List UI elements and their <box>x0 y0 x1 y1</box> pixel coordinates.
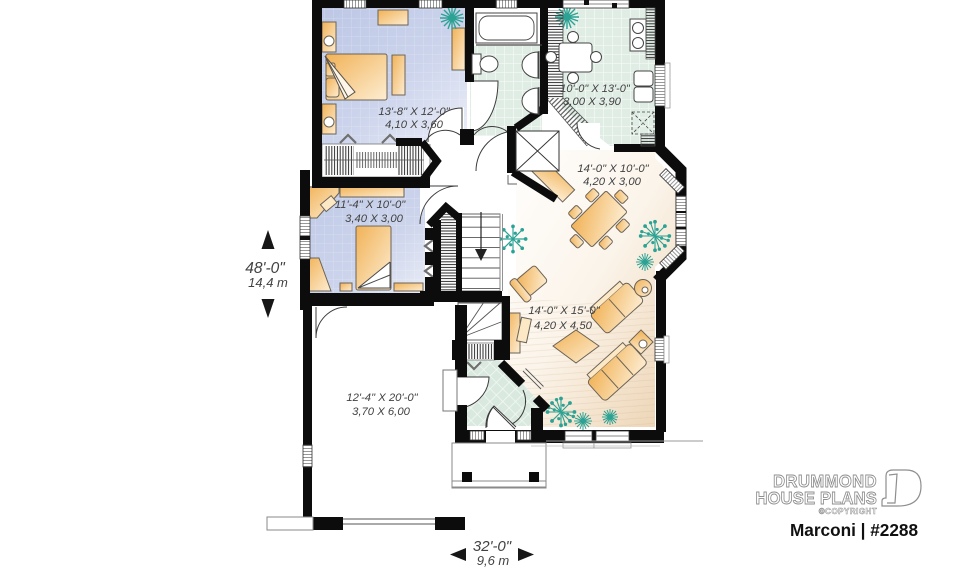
svg-text:11'-4" X 10'-0": 11'-4" X 10'-0" <box>335 199 407 211</box>
svg-text:3,70 X 6,00: 3,70 X 6,00 <box>352 406 411 418</box>
svg-text:10'-0" X 13'-0": 10'-0" X 13'-0" <box>560 83 631 95</box>
svg-text:13'-8" X 12'-0": 13'-8" X 12'-0" <box>378 106 450 118</box>
svg-text:©COPYRIGHT: ©COPYRIGHT <box>819 507 877 516</box>
svg-text:4,20 X 3,00: 4,20 X 3,00 <box>583 176 642 188</box>
svg-text:4,20 X 4,50: 4,20 X 4,50 <box>534 320 593 332</box>
svg-text:4,10 X 3,60: 4,10 X 3,60 <box>385 119 444 131</box>
svg-text:14'-0" X 10'-0": 14'-0" X 10'-0" <box>577 163 649 175</box>
svg-text:HOUSE PLANS: HOUSE PLANS <box>755 487 877 508</box>
svg-text:3,00 X 3,90: 3,00 X 3,90 <box>563 96 622 108</box>
svg-text:14,4 m: 14,4 m <box>248 275 288 290</box>
svg-text:Marconi | #2288: Marconi | #2288 <box>790 520 918 540</box>
svg-text:3,40 X 3,00: 3,40 X 3,00 <box>345 213 404 225</box>
svg-text:12'-4" X 20'-0": 12'-4" X 20'-0" <box>346 392 418 404</box>
svg-text:9,6 m: 9,6 m <box>477 553 510 568</box>
svg-text:14'-0" X 15'-0": 14'-0" X 15'-0" <box>528 305 600 317</box>
